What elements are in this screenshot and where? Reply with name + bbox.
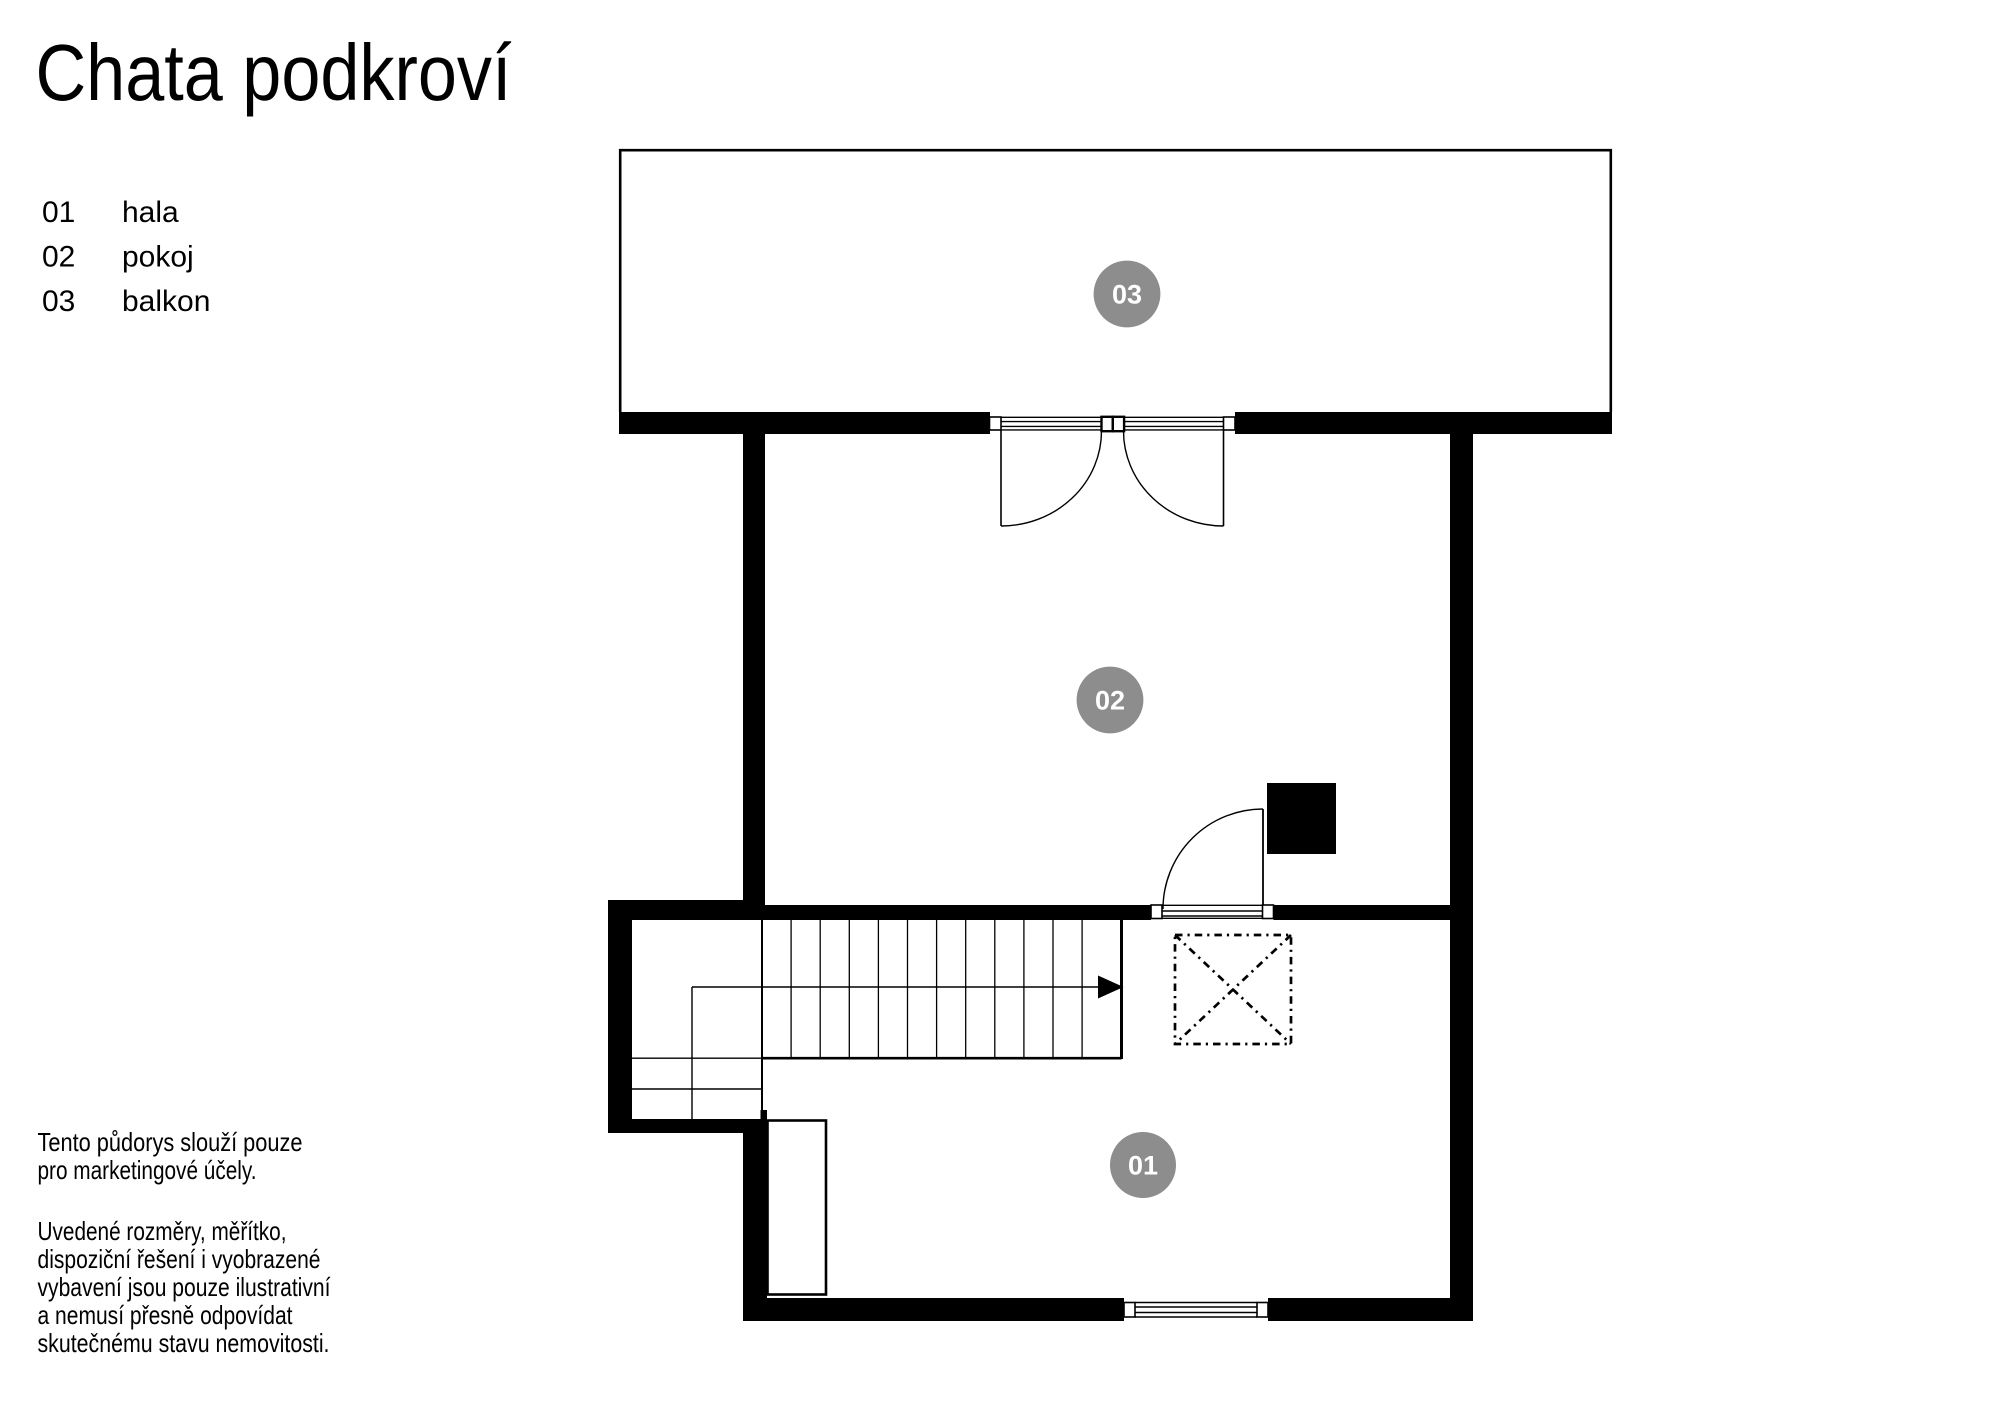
svg-text:01: 01: [42, 196, 75, 229]
svg-text:03: 03: [1112, 280, 1142, 310]
svg-text:dispoziční řešení i vyobrazené: dispoziční řešení i vyobrazené: [38, 1244, 321, 1274]
svg-text:hala: hala: [122, 196, 179, 229]
svg-text:01: 01: [1128, 1151, 1158, 1181]
svg-text:Tento půdorys slouží pouze: Tento půdorys slouží pouze: [38, 1127, 303, 1157]
svg-text:pro marketingové účely.: pro marketingové účely.: [38, 1155, 257, 1185]
svg-text:balkon: balkon: [122, 285, 210, 318]
svg-text:pokoj: pokoj: [122, 241, 194, 274]
svg-text:Chata podkroví: Chata podkroví: [36, 28, 512, 117]
svg-text:skutečnému stavu nemovitosti.: skutečnému stavu nemovitosti.: [38, 1328, 330, 1358]
svg-text:a nemusí přesně odpovídat: a nemusí přesně odpovídat: [38, 1300, 294, 1330]
svg-text:03: 03: [42, 285, 75, 318]
svg-text:Uvedené rozměry, měřítko,: Uvedené rozměry, měřítko,: [38, 1216, 287, 1246]
svg-text:02: 02: [42, 241, 75, 274]
svg-text:vybavení jsou pouze ilustrativ: vybavení jsou pouze ilustrativní: [38, 1272, 332, 1302]
svg-text:02: 02: [1095, 686, 1125, 716]
